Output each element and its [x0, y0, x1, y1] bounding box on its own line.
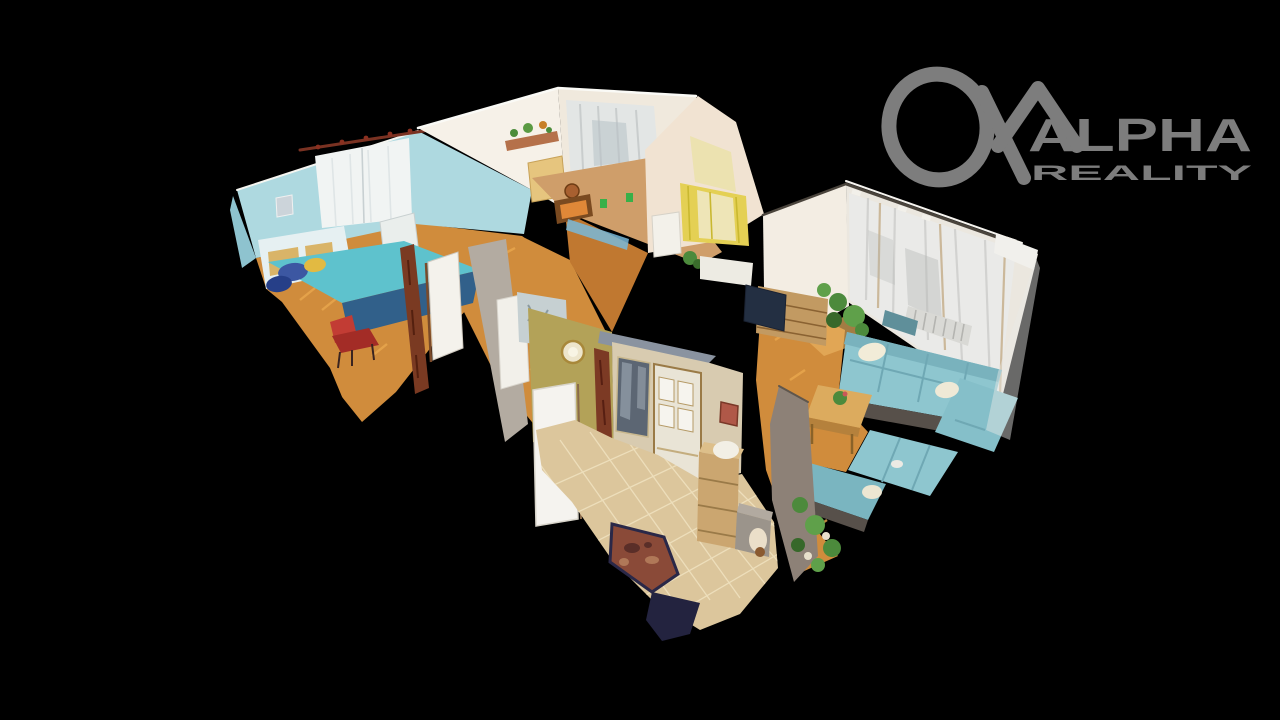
- white-wardrobe[interactable]: [652, 212, 681, 257]
- wall-clock: [565, 184, 579, 198]
- red-picture: [720, 402, 738, 426]
- hallway-white-door-1[interactable]: [428, 252, 463, 360]
- table-plant-flower: [843, 392, 848, 397]
- round-mirror-light: [568, 347, 578, 357]
- bedroom-picture: [276, 195, 293, 217]
- green-sticker-2: [626, 193, 633, 202]
- dollhouse-3d-view[interactable]: ALPHA REALITY: [0, 0, 1280, 720]
- kitchen-curtain-shadow: [592, 120, 629, 166]
- viewer-stage: ALPHA REALITY: [0, 0, 1280, 720]
- fluffy-object: [713, 441, 739, 459]
- brand-subtitle: REALITY: [1031, 162, 1252, 185]
- hall-mirror-reflection: [620, 362, 632, 420]
- green-sticker-1: [600, 199, 607, 208]
- hall-mirror-reflection-2: [637, 366, 646, 410]
- sofa-pillow-3: [862, 485, 882, 499]
- brand-name: ALPHA: [1028, 109, 1252, 161]
- cat-head: [755, 547, 765, 557]
- yellow-curtain-sheer: [697, 190, 736, 241]
- white-sneaker: [891, 460, 903, 468]
